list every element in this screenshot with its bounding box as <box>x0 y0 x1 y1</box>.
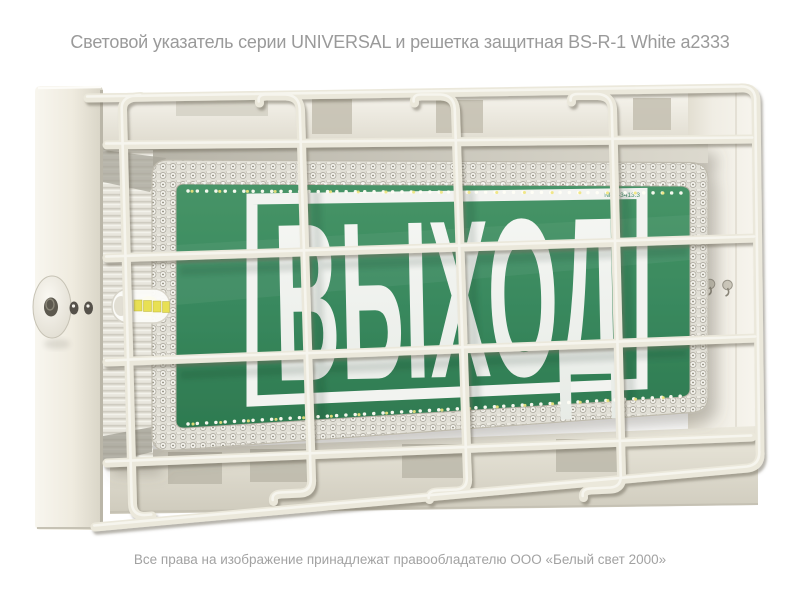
screw-hole <box>84 302 93 315</box>
led-chip <box>134 300 142 311</box>
led-chip <box>163 302 170 313</box>
copyright-caption: Все права на изображение принадлежат пра… <box>0 552 800 567</box>
led-chip <box>144 301 152 312</box>
plate-notch <box>633 98 671 130</box>
plate-notch <box>312 99 352 134</box>
luminaire-body-side <box>33 86 103 530</box>
led-chip <box>153 301 161 312</box>
led-module <box>112 289 170 323</box>
product-photo: ВЫХОД NPU-3413.3 <box>0 0 800 600</box>
cable-entry-disc <box>33 276 71 338</box>
screw-hole <box>70 302 79 315</box>
